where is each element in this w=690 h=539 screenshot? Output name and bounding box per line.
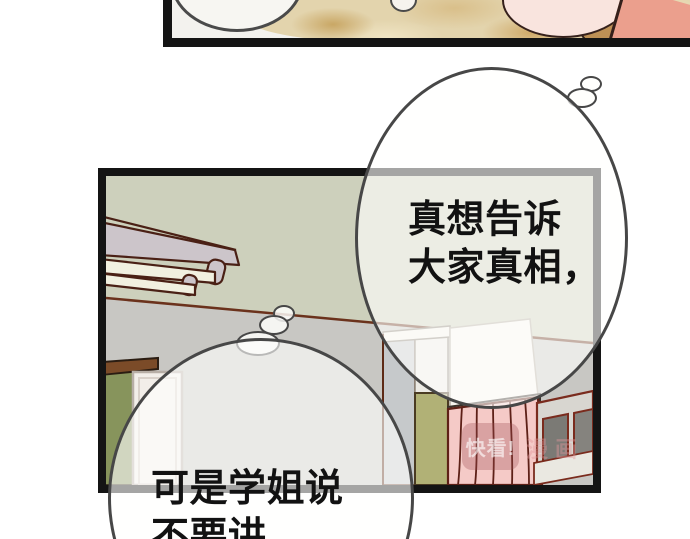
- thought-bubble-top-text: 真想告诉 大家真相，: [408, 196, 601, 292]
- thought-bubble-top: 真想告诉 大家真相，: [355, 67, 628, 409]
- bubble-line: 不要讲…: [151, 513, 344, 539]
- watermark-badge-label: 快看!: [466, 432, 516, 461]
- bubble-line: 可是学姐说: [151, 465, 344, 513]
- thought-bubble-bottom-text: 可是学姐说 不要讲…: [151, 465, 344, 539]
- watermark-badge: 快看!: [462, 423, 519, 470]
- comic-page: 快看! 漫画 真想告诉 大家真相， 可是学姐说 不要讲…: [0, 0, 690, 539]
- bubble-line: 大家真相，: [408, 244, 601, 292]
- bubble-line: 真想告诉: [408, 196, 601, 244]
- watermark-text: 漫画: [526, 432, 584, 464]
- top-panel-border-bottom: [163, 38, 690, 47]
- top-panel: [172, 0, 690, 38]
- olive-cabinet-panel: [415, 393, 448, 485]
- salmon-shape: [606, 0, 690, 38]
